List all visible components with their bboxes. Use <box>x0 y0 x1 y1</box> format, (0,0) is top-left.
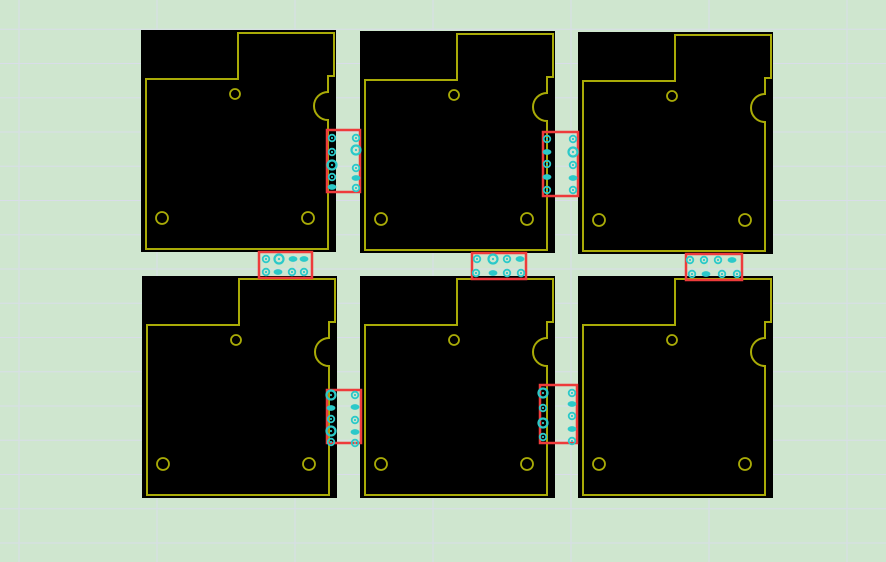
mouse-bite-hole-center <box>571 440 573 442</box>
mouse-bite-hole-center <box>546 189 548 191</box>
mouse-bite-hole-center <box>331 151 333 153</box>
mouse-bite-hole <box>543 174 552 180</box>
mouse-bite-hole-center <box>291 271 293 273</box>
mouse-bite-hole-center <box>476 258 478 260</box>
mouse-bite-hole-center <box>506 258 508 260</box>
cad-viewport[interactable] <box>0 0 886 562</box>
mouse-bite-hole-center <box>330 430 332 432</box>
mouse-bite-hole-center <box>331 176 333 178</box>
mouse-bite-hole-center <box>330 394 332 396</box>
mouse-bite-hole-center <box>572 189 574 191</box>
mouse-bite-hole-center <box>717 259 719 261</box>
mouse-bite-hole-center <box>572 164 574 166</box>
breakout-tab-1-4[interactable] <box>259 252 312 278</box>
mouse-bite-hole-center <box>354 419 356 421</box>
mouse-bite-hole-center <box>542 436 544 438</box>
mouse-bite-hole-center <box>542 392 544 394</box>
mouse-bite-hole-center <box>736 273 738 275</box>
mouse-bite-hole-center <box>331 164 333 166</box>
mouse-bite-hole <box>352 175 361 181</box>
mouse-bite-hole-center <box>355 187 357 189</box>
mouse-bite-hole-center <box>492 258 494 260</box>
mouse-bite-hole-center <box>546 138 548 140</box>
mouse-bite-hole-center <box>475 272 477 274</box>
mouse-bite-hole-center <box>278 258 280 260</box>
mouse-bite-hole-center <box>520 272 522 274</box>
mouse-bite-hole <box>289 256 298 262</box>
mouse-bite-hole <box>328 184 337 190</box>
mouse-bite-hole <box>327 405 336 411</box>
breakout-tab-2-3[interactable] <box>543 132 578 196</box>
mouse-bite-hole-center <box>571 392 573 394</box>
mouse-bite-hole <box>569 175 578 181</box>
mouse-bite-hole-center <box>542 422 544 424</box>
mouse-bite-hole <box>516 256 525 262</box>
mouse-bite-hole-center <box>572 151 574 153</box>
pcb-board-4[interactable] <box>142 276 337 498</box>
pcb-board-1[interactable] <box>141 30 336 252</box>
pcb-board-2[interactable] <box>360 31 555 253</box>
panel-canvas[interactable] <box>0 0 886 562</box>
mouse-bite-hole-center <box>265 258 267 260</box>
mouse-bite-hole-center <box>689 259 691 261</box>
mouse-bite-hole-center <box>303 271 305 273</box>
pcb-board-3[interactable] <box>578 32 773 254</box>
mouse-bite-hole <box>300 256 309 262</box>
mouse-bite-hole-center <box>331 137 333 139</box>
mouse-bite-hole <box>543 149 552 155</box>
mouse-bite-hole-center <box>572 138 574 140</box>
mouse-bite-hole-center <box>354 442 356 444</box>
mouse-bite-hole-center <box>546 163 548 165</box>
mouse-bite-hole <box>351 404 360 410</box>
mouse-bite-hole <box>568 426 577 432</box>
mouse-bite-hole <box>568 401 577 407</box>
mouse-bite-hole <box>274 269 283 275</box>
mouse-bite-hole-center <box>506 272 508 274</box>
mouse-bite-hole <box>728 257 737 263</box>
mouse-bite-hole <box>489 270 498 276</box>
mouse-bite-hole-center <box>330 441 332 443</box>
mouse-bite-hole <box>702 271 711 277</box>
mouse-bite-hole-center <box>265 271 267 273</box>
mouse-bite-hole-center <box>355 149 357 151</box>
breakout-tab-4-5[interactable] <box>327 390 362 446</box>
mouse-bite-hole-center <box>355 137 357 139</box>
pcb-board-5[interactable] <box>360 276 555 498</box>
mouse-bite-hole-center <box>354 394 356 396</box>
mouse-bite-hole-center <box>542 407 544 409</box>
mouse-bite-hole-center <box>703 259 705 261</box>
mouse-bite-hole-center <box>330 418 332 420</box>
mouse-bite-hole-center <box>691 273 693 275</box>
mouse-bite-hole-center <box>721 273 723 275</box>
mouse-bite-hole-center <box>571 415 573 417</box>
breakout-tab-2-5[interactable] <box>472 253 526 279</box>
mouse-bite-hole <box>351 429 360 435</box>
pcb-board-6[interactable] <box>578 276 773 498</box>
mouse-bite-hole-center <box>355 167 357 169</box>
